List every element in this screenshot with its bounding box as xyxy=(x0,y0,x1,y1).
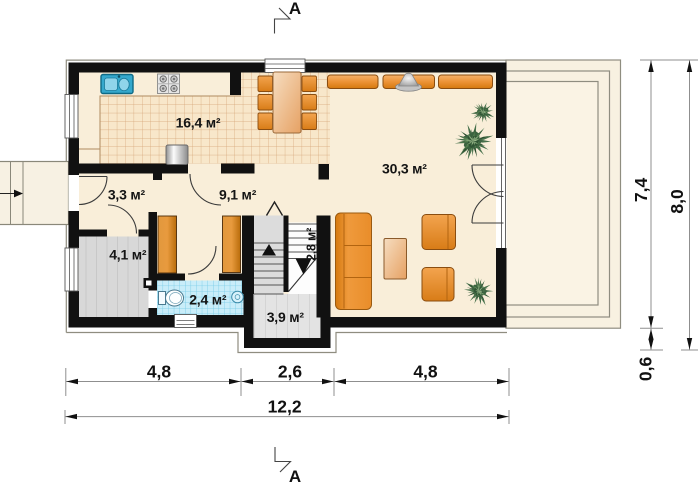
svg-text:8,0: 8,0 xyxy=(667,189,687,214)
svg-text:7,4: 7,4 xyxy=(631,178,651,203)
svg-text:4,1 м²: 4,1 м² xyxy=(109,247,147,263)
svg-text:9,1 м²: 9,1 м² xyxy=(219,186,257,202)
svg-text:2,8 м²: 2,8 м² xyxy=(305,228,319,261)
svg-text:A: A xyxy=(289,0,301,18)
svg-text:4,8: 4,8 xyxy=(147,361,172,381)
svg-text:3,3 м²: 3,3 м² xyxy=(108,187,146,203)
svg-text:0,6: 0,6 xyxy=(636,357,656,382)
svg-text:2,4 м²: 2,4 м² xyxy=(189,292,227,308)
svg-text:30,3 м²: 30,3 м² xyxy=(382,161,427,177)
svg-text:2,6: 2,6 xyxy=(278,361,303,381)
svg-text:12,2: 12,2 xyxy=(268,397,302,417)
svg-text:16,4 м²: 16,4 м² xyxy=(176,115,221,131)
svg-text:A: A xyxy=(289,467,301,483)
svg-text:3,9 м²: 3,9 м² xyxy=(267,309,305,325)
svg-text:4,8: 4,8 xyxy=(413,361,438,381)
